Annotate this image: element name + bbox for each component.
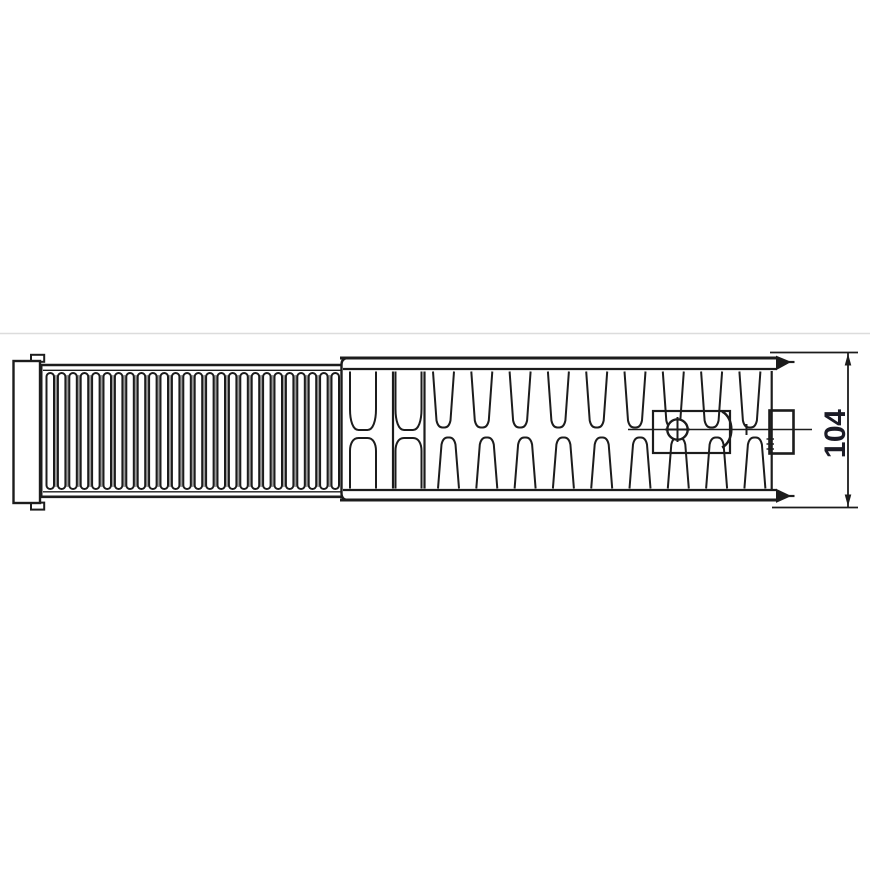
upper-fin (739, 372, 760, 428)
grille-slot (69, 373, 77, 489)
radiator-drawing-canvas: 104 (0, 0, 870, 870)
dimension-arrowhead-icon (845, 354, 852, 366)
grille-slot (275, 373, 283, 489)
grille-slot (126, 373, 134, 489)
grille-section (41, 364, 342, 498)
grille-slot (58, 373, 66, 489)
hourglass-fin-lower (350, 438, 376, 489)
grille-slot (195, 373, 203, 489)
lower-fin (515, 438, 536, 489)
grille-slot (309, 373, 317, 489)
upper-fin (548, 372, 569, 428)
upper-fin (433, 372, 454, 428)
grille-slot (149, 373, 157, 489)
grille-slot (161, 373, 169, 489)
hourglass-fin-upper (350, 372, 376, 431)
tailpiece-connector (770, 411, 794, 454)
grille-slot (172, 373, 180, 489)
grille-slot (229, 373, 237, 489)
grille-slot (218, 373, 226, 489)
upper-fin (586, 372, 607, 428)
lower-fin (630, 438, 651, 489)
hourglass-fins (350, 372, 425, 489)
lower-fin (744, 438, 765, 489)
dimension-arrowhead-icon (845, 495, 852, 507)
lower-fin (438, 438, 459, 489)
dimension-label: 104 (819, 409, 852, 458)
lower-fin (591, 438, 612, 489)
upper-fin (625, 372, 646, 428)
panel-seam-tip-bottom (776, 489, 790, 503)
upper-fin (510, 372, 531, 428)
radiator-top-view-drawing: 104 (0, 0, 870, 870)
end-cap (14, 355, 45, 510)
grille-slot (320, 373, 328, 489)
grille-slot (286, 373, 294, 489)
lower-fin (553, 438, 574, 489)
grille-slot (138, 373, 146, 489)
grille-slot (104, 373, 112, 489)
upper-fin (471, 372, 492, 428)
grille-slot (332, 373, 340, 489)
grille-slot (81, 373, 89, 489)
grille-slot (183, 373, 191, 489)
grille-slot (47, 373, 55, 489)
grille-slot (206, 373, 214, 489)
hourglass-fin-lower (396, 438, 422, 489)
grille-slot (92, 373, 100, 489)
grille-slot (263, 373, 271, 489)
grille-slot (115, 373, 123, 489)
upper-fin (701, 372, 722, 428)
panel-seam-tip-top (776, 356, 790, 371)
grille-slot (297, 373, 305, 489)
panel-left-end (342, 358, 349, 500)
grille-slot (240, 373, 248, 489)
hourglass-fin-upper (396, 372, 422, 431)
end-cap-body (14, 361, 41, 503)
lower-fin (476, 438, 497, 489)
grille-slot (252, 373, 260, 489)
lower-fin (668, 438, 689, 489)
